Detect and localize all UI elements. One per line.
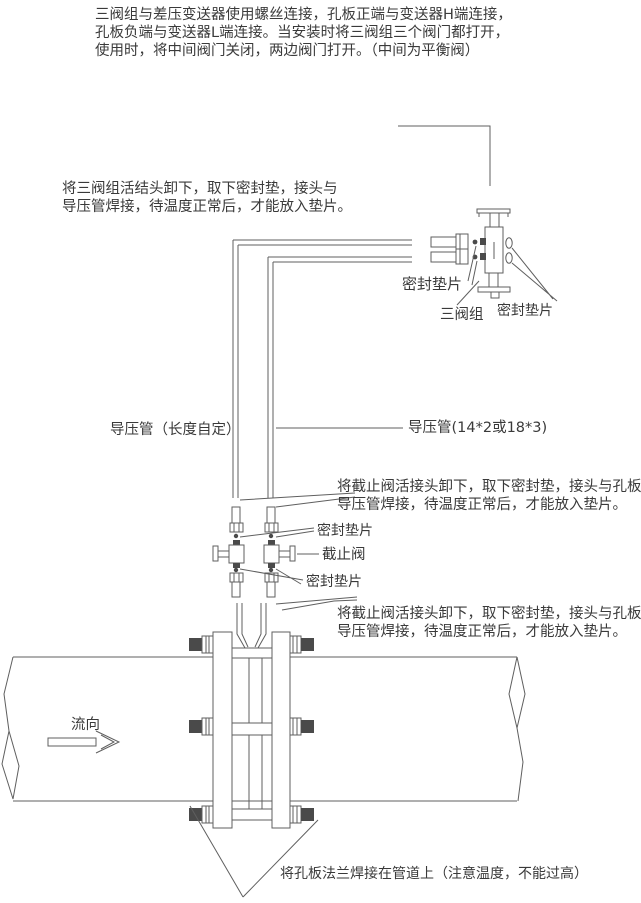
shutoff-note-upper-line: 将截止阀活接头卸下，取下密封垫，接头与孔板 <box>337 478 641 496</box>
impulse-pipe-label-left: 导压管（长度自定） <box>110 421 241 439</box>
shutoff-note-lower: 将截止阀活接头卸下，取下密封垫，接头与孔板 导压管焊接，待温度正常后，才能放入垫… <box>337 605 641 641</box>
shutoff-note-lower-line: 导压管焊接，待温度正常后，才能放入垫片。 <box>337 623 641 641</box>
shutoff-valve-label: 截止阀 <box>322 546 366 564</box>
seal-gasket-rings <box>506 238 512 263</box>
union-fitting-lower <box>431 249 468 264</box>
seal-gasket-label-left: 密封垫片 <box>402 275 462 294</box>
top-note-line: 三阀组与差压变送器使用螺丝连接，孔板正端与变送器H端连接， <box>95 6 512 24</box>
manifold-note-line: 将三阀组活结头卸下，取下密封垫，接头与 <box>62 180 352 198</box>
transmitter-connection-line <box>398 126 490 186</box>
tap-pipes-drawing <box>237 603 266 648</box>
impulse-pipes-drawing <box>233 240 412 498</box>
shutoff-note-lower-line: 将截止阀活接头卸下，取下密封垫，接头与孔板 <box>337 605 641 623</box>
manifold-leader-lines <box>457 246 557 305</box>
shutoff-valve-right-drawing <box>264 507 295 597</box>
shutoff-valve-left-drawing <box>213 507 244 597</box>
shutoff-note-upper-line: 导压管焊接，待温度正常后，才能放入垫片。 <box>337 496 641 514</box>
seal-gasket-label-right: 密封垫片 <box>497 303 553 321</box>
union-fitting-upper <box>431 234 468 249</box>
top-note-line: 使用时，将中间阀门关闭，两边阀门打开。（中间为平衡阀） <box>95 42 512 60</box>
manifold-note: 将三阀组活结头卸下，取下密封垫，接头与 导压管焊接，待温度正常后，才能放入垫片。 <box>62 180 352 216</box>
top-note-line: 孔板负端与变送器L端连接。当安装时将三阀组三个阀门都打开， <box>95 24 512 42</box>
shutoff-note-upper: 将截止阀活接头卸下，取下密封垫，接头与孔板 导压管焊接，待温度正常后，才能放入垫… <box>337 478 641 514</box>
bottom-weld-note: 将孔板法兰焊接在管道上（注意温度，不能过高） <box>280 866 588 884</box>
top-note: 三阀组与差压变送器使用螺丝连接，孔板正端与变送器H端连接， 孔板负端与变送器L端… <box>95 6 512 60</box>
installation-line-drawing <box>0 0 641 903</box>
orifice-flange-drawing <box>189 632 314 828</box>
impulse-pipe-label-right: 导压管(14*2或18*3) <box>408 419 547 437</box>
flow-direction-label: 流向 <box>71 716 100 734</box>
orifice-flowmeter-installation-diagram: 三阀组与差压变送器使用螺丝连接，孔板正端与变送器H端连接， 孔板负端与变送器L端… <box>0 0 641 903</box>
manifold-label: 三阀组 <box>440 306 484 324</box>
valve-seal-gasket-label-bottom: 密封垫片 <box>306 574 362 592</box>
manifold-note-line: 导压管焊接，待温度正常后，才能放入垫片。 <box>62 198 352 216</box>
flow-arrow <box>48 731 119 753</box>
valve-seal-gasket-label-top: 密封垫片 <box>317 523 373 541</box>
